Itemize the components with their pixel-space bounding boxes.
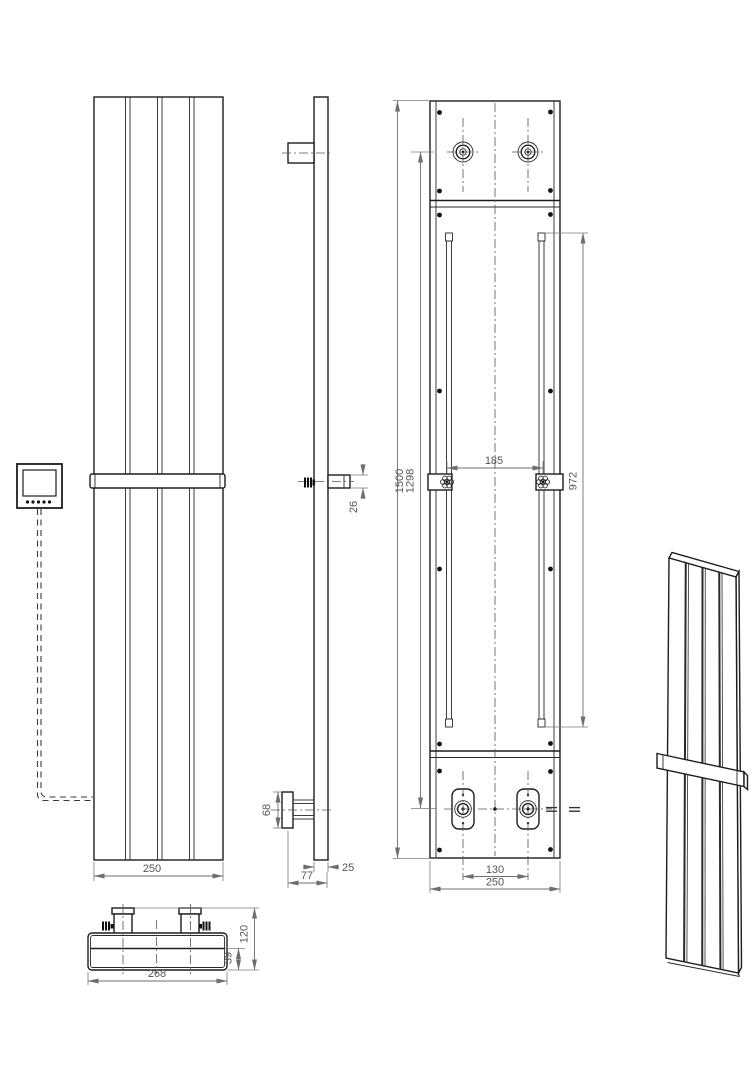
dim-rear-valve-span: 130 bbox=[486, 864, 504, 876]
bottom-view: 268 120 39 bbox=[88, 904, 259, 985]
dim-front-width: 250 bbox=[143, 863, 161, 875]
controller-cable bbox=[38, 509, 94, 801]
rear-view: 1500 1298 185 972 130 250 bbox=[393, 101, 588, 894]
dim-rear-mount-height: 1298 bbox=[405, 469, 417, 493]
bottom-body bbox=[88, 904, 227, 974]
front-towel-bar bbox=[90, 474, 225, 488]
dim-side-panel-thickness: 25 bbox=[342, 862, 354, 874]
dim-bottom-total-depth: 120 bbox=[239, 925, 251, 943]
front-width-dimension: 250 bbox=[94, 862, 223, 881]
dim-side-total-depth: 77 bbox=[301, 870, 313, 882]
side-view: 26 68 25 77 bbox=[261, 97, 368, 888]
dim-side-bar-offset: 26 bbox=[348, 501, 360, 513]
perspective-view bbox=[657, 553, 748, 977]
side-bar-offset-dimension: 26 bbox=[348, 464, 368, 513]
dim-rear-bracket-span: 185 bbox=[485, 455, 503, 467]
thermostat-controller bbox=[17, 464, 93, 801]
dim-rear-rail-length: 972 bbox=[568, 472, 580, 490]
dim-side-bracket-height: 68 bbox=[261, 804, 273, 816]
dim-bottom-inner-depth: 39 bbox=[223, 952, 235, 964]
controller-screen bbox=[23, 470, 56, 496]
rear-valve-span-dimension: 130 bbox=[463, 864, 528, 877]
front-view: 250 bbox=[90, 97, 225, 881]
dim-rear-width: 250 bbox=[486, 877, 504, 889]
dim-bottom-total-width: 268 bbox=[148, 968, 166, 980]
drawing-sheet: 250 bbox=[0, 0, 755, 1080]
